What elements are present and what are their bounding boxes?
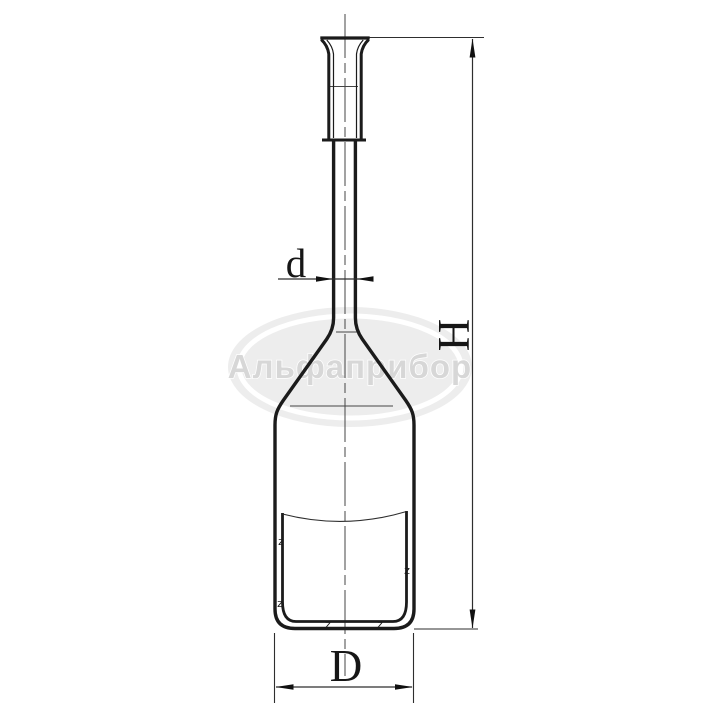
hatch-mark: z (277, 597, 283, 610)
hatch-marks: z z z z z (277, 535, 410, 631)
label-d: d (286, 240, 307, 286)
arrow-left-icon (276, 684, 294, 689)
arrow-right-icon (395, 684, 413, 689)
label-H: H (429, 319, 479, 352)
label-D: D (330, 641, 363, 691)
technical-drawing-page: Альфаприбор z z z z z (0, 0, 719, 719)
watermark-text: Альфаприбор (228, 348, 472, 385)
joint-outer-wall-right (361, 40, 369, 139)
arrow-right-icon (316, 276, 333, 281)
hatch-mark: z (325, 618, 331, 631)
dimension-D: D (275, 633, 414, 703)
arrow-left-icon (357, 276, 374, 281)
hatch-mark: z (404, 564, 410, 577)
dimension-d: d (278, 240, 374, 286)
hatch-mark: z (278, 535, 284, 548)
hatch-mark: z (377, 618, 383, 631)
arrow-up-icon (470, 39, 476, 58)
joint-outer-wall-left (321, 40, 329, 139)
flask-technical-drawing: Альфаприбор z z z z z (0, 0, 719, 719)
arrow-down-icon (470, 610, 476, 629)
